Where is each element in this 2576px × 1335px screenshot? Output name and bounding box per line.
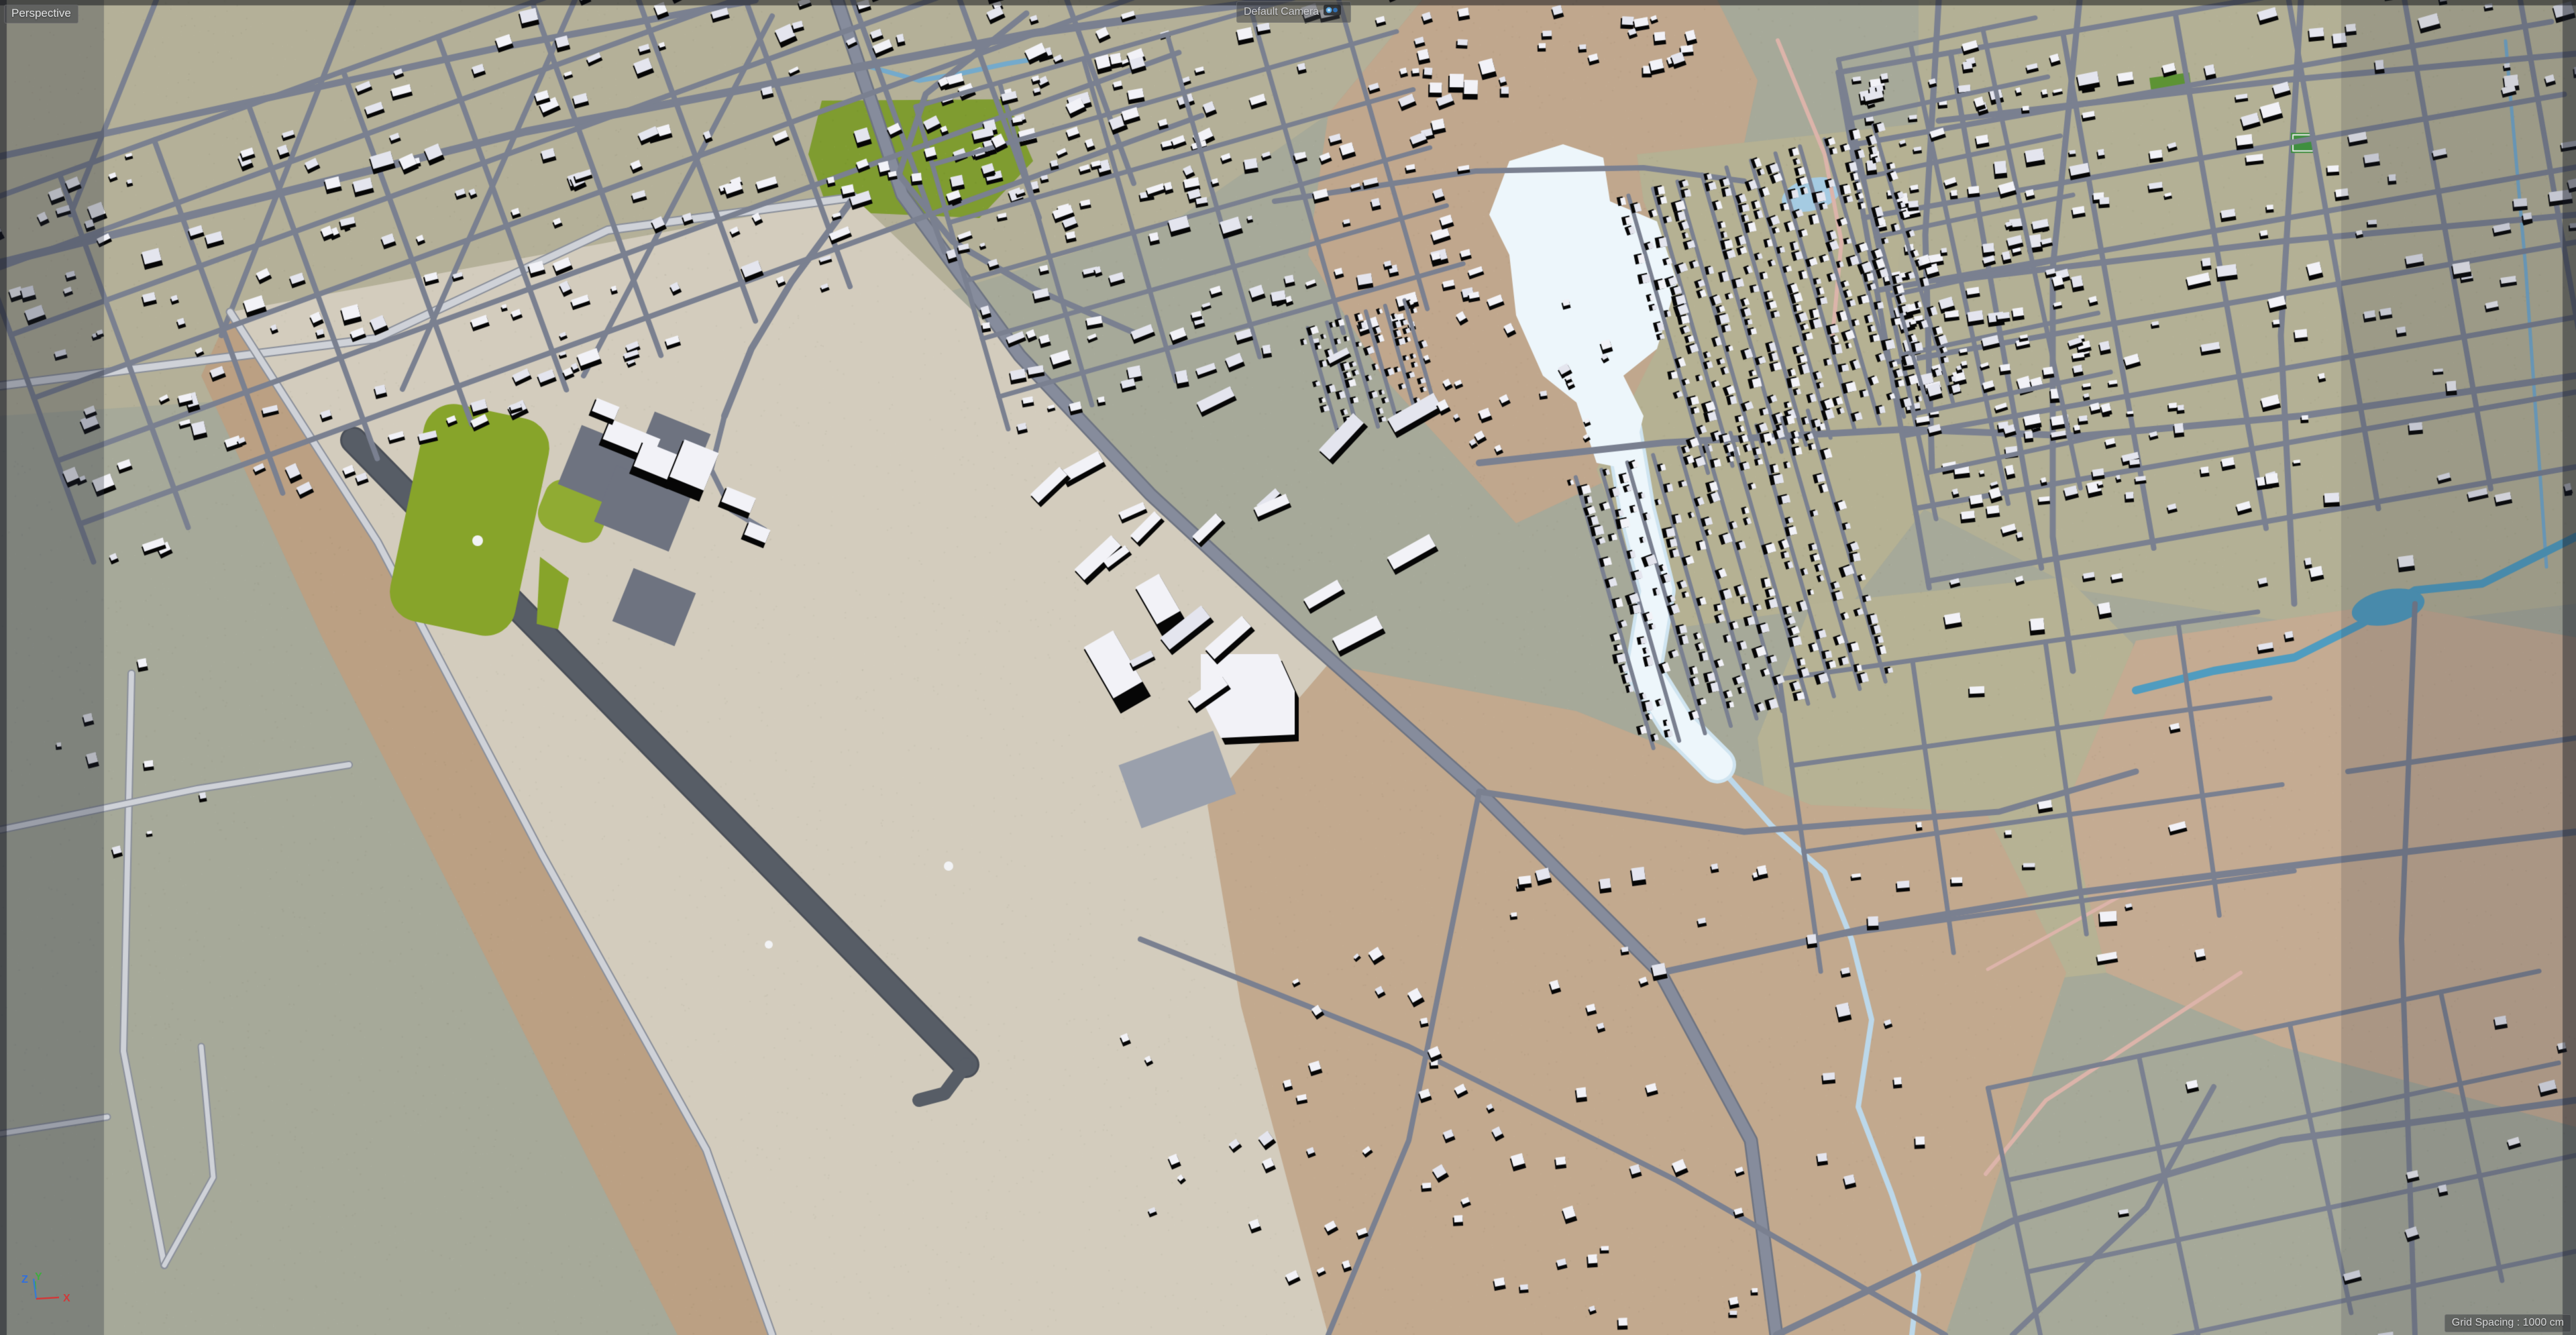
camera-label[interactable]: Default Camera — [1236, 1, 1351, 23]
world-axis-gizmo: Z Y X — [19, 1268, 79, 1314]
z-axis-label: Z — [21, 1274, 28, 1285]
x-axis-label: X — [63, 1293, 70, 1304]
x-axis-line — [36, 1297, 59, 1299]
camera-icon — [1324, 4, 1344, 19]
y-axis-label: Y — [35, 1271, 42, 1283]
grid-spacing-indicator: Grid Spacing : 1000 cm — [2445, 1314, 2571, 1332]
grid-spacing-text: Grid Spacing : 1000 cm — [2452, 1317, 2564, 1329]
viewport-label[interactable]: Perspective — [4, 5, 78, 23]
camera-label-text: Default Camera — [1244, 6, 1319, 18]
viewport-label-text: Perspective — [11, 7, 71, 20]
viewport-canvas[interactable] — [0, 0, 2576, 1335]
